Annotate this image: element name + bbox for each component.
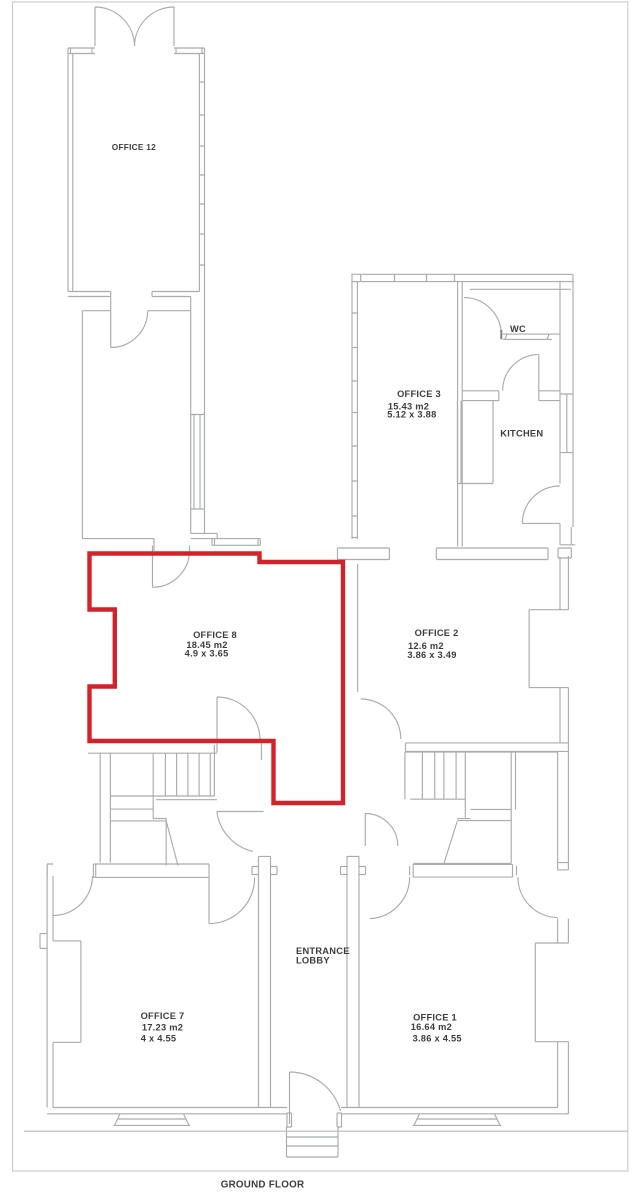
svg-text:17.23 m2: 17.23 m2 <box>142 1023 183 1033</box>
svg-text:GROUND FLOOR: GROUND FLOOR <box>221 1180 305 1191</box>
svg-text:WC: WC <box>510 324 526 334</box>
svg-text:4 x 4.55: 4 x 4.55 <box>141 1034 177 1044</box>
svg-text:3.86 x 3.49: 3.86 x 3.49 <box>407 650 456 660</box>
svg-text:5.12 x 3.88: 5.12 x 3.88 <box>387 410 436 420</box>
svg-text:KITCHEN: KITCHEN <box>500 428 543 438</box>
svg-text:OFFICE 3: OFFICE 3 <box>397 389 441 399</box>
svg-text:OFFICE 12: OFFICE 12 <box>112 142 156 152</box>
svg-text:OFFICE 1: OFFICE 1 <box>413 1012 457 1022</box>
svg-text:3.86 x 4.55: 3.86 x 4.55 <box>413 1033 462 1043</box>
svg-text:ENTRANCE: ENTRANCE <box>296 946 350 956</box>
svg-text:4.9 x 3.65: 4.9 x 3.65 <box>185 648 229 658</box>
svg-text:OFFICE 8: OFFICE 8 <box>193 630 237 640</box>
svg-text:OFFICE 2: OFFICE 2 <box>415 628 459 638</box>
svg-text:16.64 m2: 16.64 m2 <box>411 1022 452 1032</box>
svg-text:OFFICE 7: OFFICE 7 <box>141 1011 185 1021</box>
svg-text:LOBBY: LOBBY <box>296 955 330 965</box>
